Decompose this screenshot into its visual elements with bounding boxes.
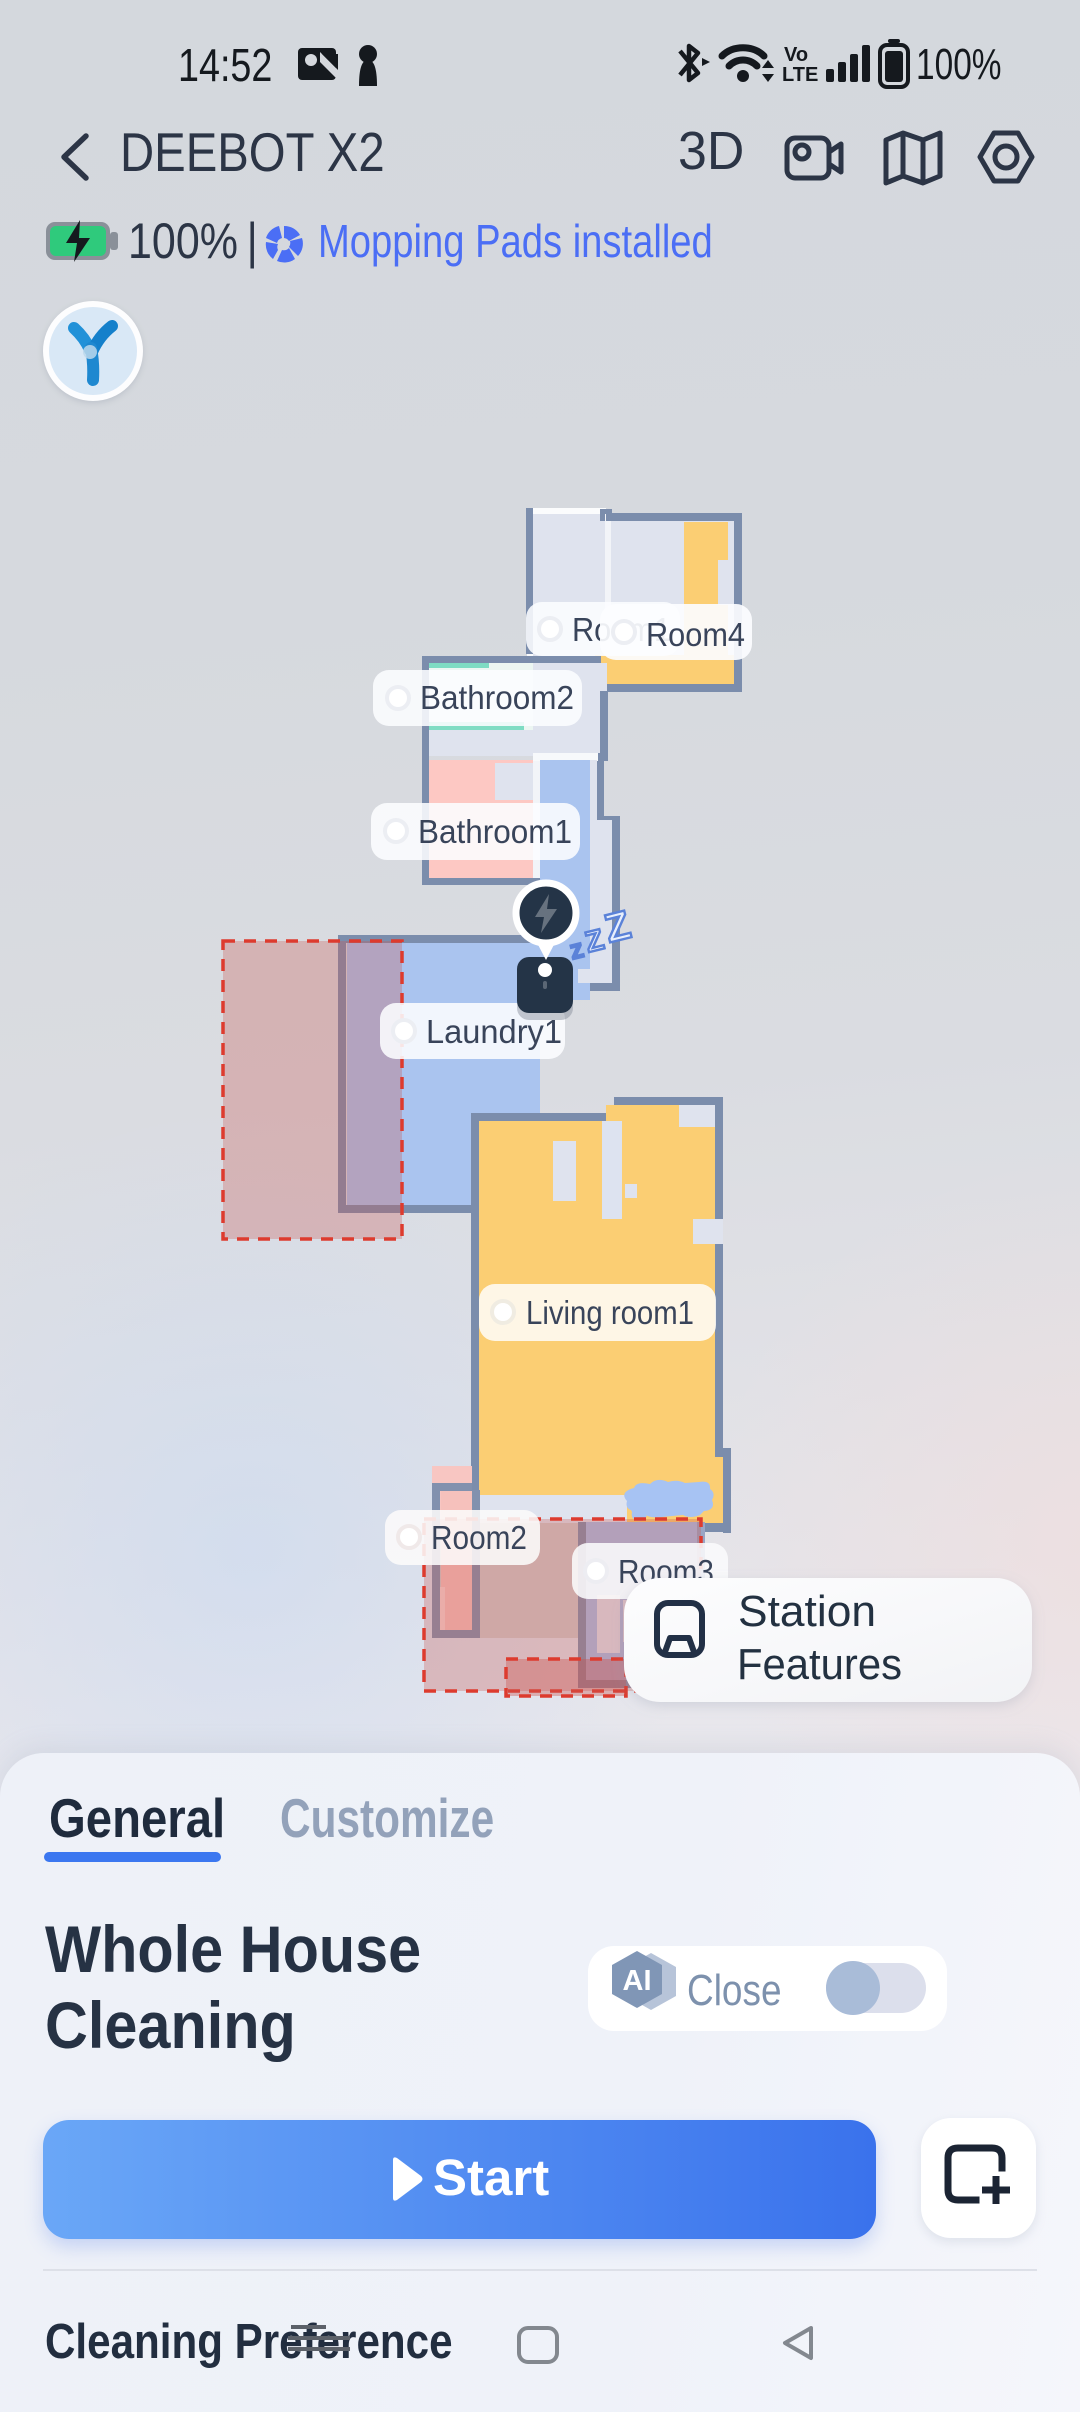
svg-text:Living room1: Living room1 <box>526 1294 694 1331</box>
svg-text:Station: Station <box>738 1587 876 1636</box>
svg-text:Room4: Room4 <box>646 616 745 653</box>
svg-text:Features: Features <box>737 1640 902 1689</box>
svg-text:Bathroom2: Bathroom2 <box>420 679 574 716</box>
svg-text:AI: AI <box>623 1965 652 1997</box>
svg-text:Bathroom1: Bathroom1 <box>418 813 572 850</box>
svg-text:Room2: Room2 <box>431 1519 527 1556</box>
